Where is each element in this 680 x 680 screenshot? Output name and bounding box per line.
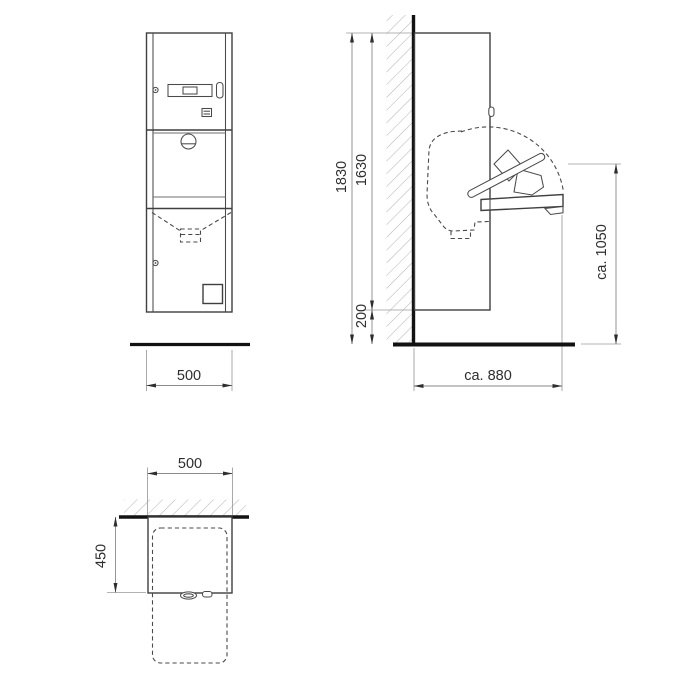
wall-hatching: [124, 500, 246, 516]
platform-handle-hook: [545, 207, 563, 215]
floor-gap-dim-label: 200: [354, 304, 370, 328]
chute-outlet-dashed: [181, 229, 201, 242]
wall-hatching: [387, 15, 414, 345]
total-height-dim-label: 1830: [334, 161, 350, 193]
handle-outer: [181, 592, 197, 599]
latch-tab: [203, 592, 213, 598]
coin-slot: [217, 83, 224, 99]
lock-cylinder-bump: [489, 107, 494, 117]
front-view: 500: [130, 33, 250, 391]
access-hatch-square: [203, 285, 223, 304]
technical-drawing: 500 1830 1630: [0, 0, 680, 680]
top-width-dim-label: 500: [178, 456, 202, 472]
cabinet-side-outline: [415, 33, 491, 310]
floor-gap-dimension: 200: [354, 304, 372, 344]
front-width-dimension: 500: [147, 350, 233, 391]
lock-knob: [181, 134, 196, 149]
top-depth-dimension: 450: [94, 517, 147, 593]
chute-funnel-left-dashed: [152, 213, 181, 232]
cabinet-front-outline: [147, 33, 233, 312]
top-view: 500 450: [94, 456, 250, 663]
table-height-dim-label: ca. 1050: [594, 224, 610, 280]
cabinet-height-dim-label: 1630: [354, 154, 370, 186]
open-depth-dimension: ca. 880: [414, 348, 562, 391]
technical-drawing-sheet: 500 1830 1630: [0, 0, 680, 680]
card-reader-icon: [202, 109, 212, 117]
front-width-dim-label: 500: [177, 368, 201, 384]
open-depth-dim-label: ca. 880: [464, 368, 512, 384]
screw-center-dot: [155, 262, 157, 264]
display-panel: [168, 85, 212, 97]
screw-center-dot: [155, 89, 157, 91]
display-window: [183, 87, 197, 94]
total-height-dimension: 1830: [334, 33, 352, 344]
cabinet-height-dimension: 1630: [354, 33, 372, 310]
side-view: 1830 1630 200 ca. 1050 ca. 880: [334, 15, 621, 391]
table-height-dimension: ca. 1050: [568, 164, 621, 344]
top-depth-dim-label: 450: [94, 544, 110, 568]
chute-funnel-right-dashed: [200, 213, 231, 232]
